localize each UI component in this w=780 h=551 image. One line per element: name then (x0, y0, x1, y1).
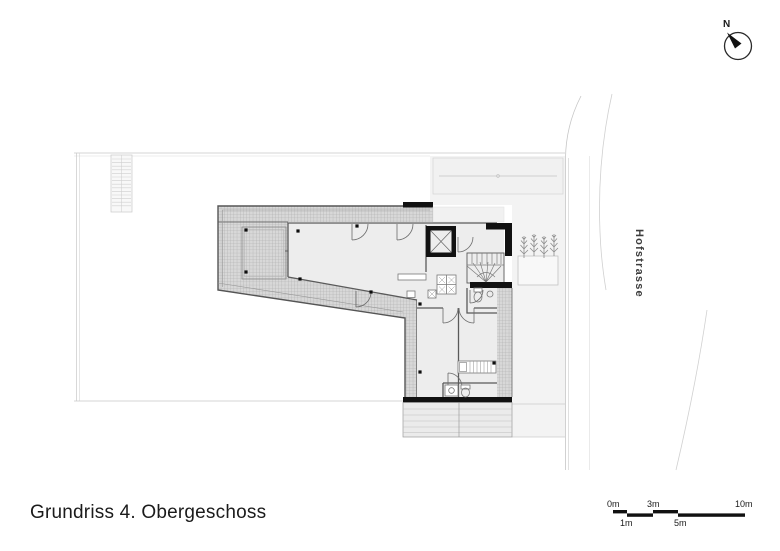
neighbor-parcel-right (512, 205, 565, 437)
scale-label-5m: 5m (674, 518, 687, 528)
page-title: Grundriss 4. Obergeschoss (30, 502, 266, 524)
north-label: N (723, 19, 730, 30)
north-arrow (725, 33, 752, 60)
floor-plan-sheet: Grundriss 4. Obergeschoss N Hofstrasse 0… (0, 0, 780, 551)
scale-label-1m: 1m (620, 518, 633, 528)
bed (458, 361, 496, 373)
floor-plan-drawing (0, 0, 780, 551)
kitchen-counter (398, 274, 426, 280)
terrace-strip-east (497, 288, 512, 397)
bathroom-sink (445, 385, 458, 396)
scale-label-0m: 0m (607, 499, 620, 509)
exterior-stair-strip (111, 155, 132, 212)
cooktop (437, 275, 456, 294)
scale-bar (613, 510, 745, 517)
scale-label-10m: 10m (735, 499, 753, 509)
street-name-label: Hofstrasse (633, 229, 645, 298)
kitchen-sink (428, 290, 436, 298)
balcony-south (403, 403, 512, 438)
fixture-box (407, 291, 415, 298)
scale-label-3m: 3m (647, 499, 660, 509)
